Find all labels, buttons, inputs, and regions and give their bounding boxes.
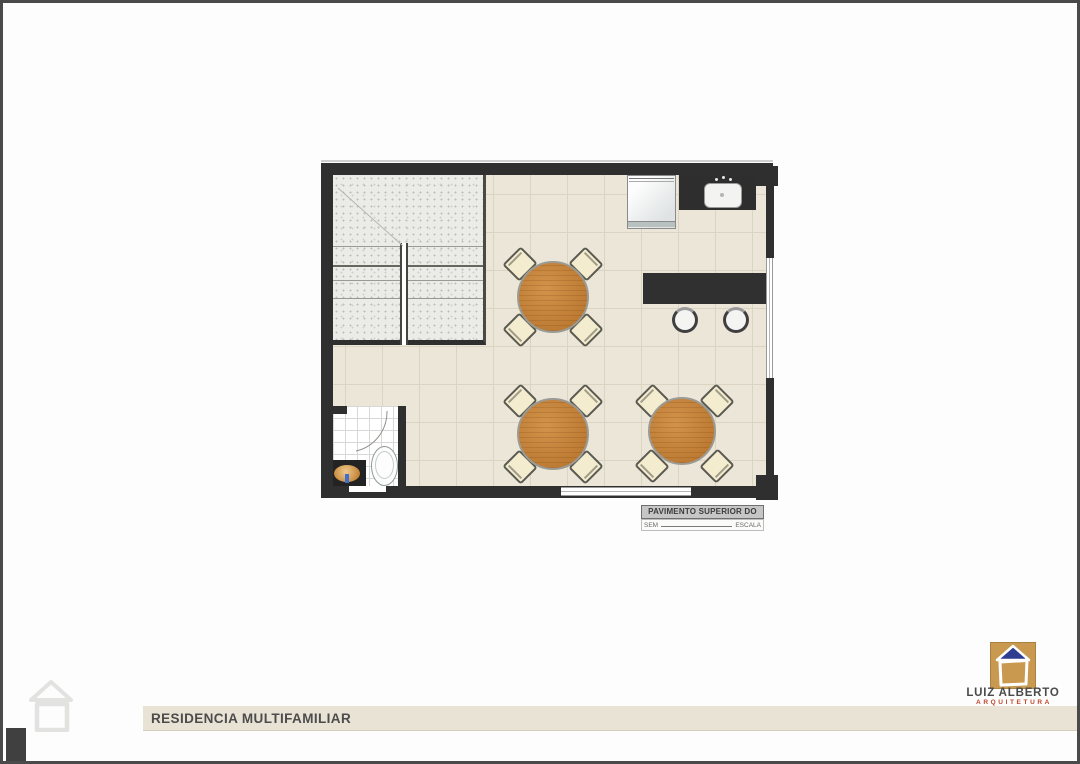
logo-name: LUIZ ALBERTO [953,687,1073,699]
architect-logo [990,642,1036,689]
bar-stool [672,307,698,333]
plan-caption-scale: SEM ESCALA [641,519,764,531]
faucet-hole-icon [729,178,732,181]
wall-top [321,163,773,175]
faucet-hole-icon [722,176,725,179]
stair-tread-line [333,246,483,247]
bathroom-door-threshold [349,486,386,492]
bar-stool [723,307,749,333]
wall-corner-top-right [756,166,778,186]
refrigerator [627,175,676,229]
faucet-hole-icon [715,178,718,181]
logo-house-icon [991,643,1035,688]
house-watermark-icon [25,676,77,732]
sheet-title: RESIDENCIA MULTIFAMILIAR [151,706,351,731]
stair-landing-line [333,265,483,267]
plan-caption-title: PAVIMENTO SUPERIOR DO DECK [641,505,764,519]
dining-table [517,261,589,333]
stair-tread-line [333,280,483,281]
vanity-faucet-icon [345,474,349,483]
toilet [371,446,398,486]
bar-counter [643,273,766,304]
drawing-sheet: PAVIMENTO SUPERIOR DO DECK SEM ESCALA RE… [0,0,1080,764]
window-bottom [561,487,691,496]
bathroom-wall-top [321,406,347,414]
scale-rule-line [661,526,732,527]
wall-right-lower [766,378,774,486]
kitchen-sink-counter [679,173,756,210]
logo-subtitle: ARQUITETURA [954,699,1074,706]
stair-tread-line [333,298,483,299]
scale-suffix-label: ESCALA [735,522,761,529]
wall-right-upper [766,175,774,258]
wall-bottom [321,486,773,498]
wall-corner-bottom-right [756,475,778,500]
wall-shadow-line [321,160,773,162]
kitchen-sink [704,183,742,208]
window-right [766,258,773,378]
dining-table [648,397,716,465]
sheet-corner-block [6,728,26,764]
bathroom-wall-right [398,406,406,486]
wall-left [321,163,333,498]
stairs-area [333,175,486,345]
stair-railing [400,243,408,345]
floor-plan [321,163,775,500]
dining-table [517,398,589,470]
scale-prefix-label: SEM [644,522,658,529]
